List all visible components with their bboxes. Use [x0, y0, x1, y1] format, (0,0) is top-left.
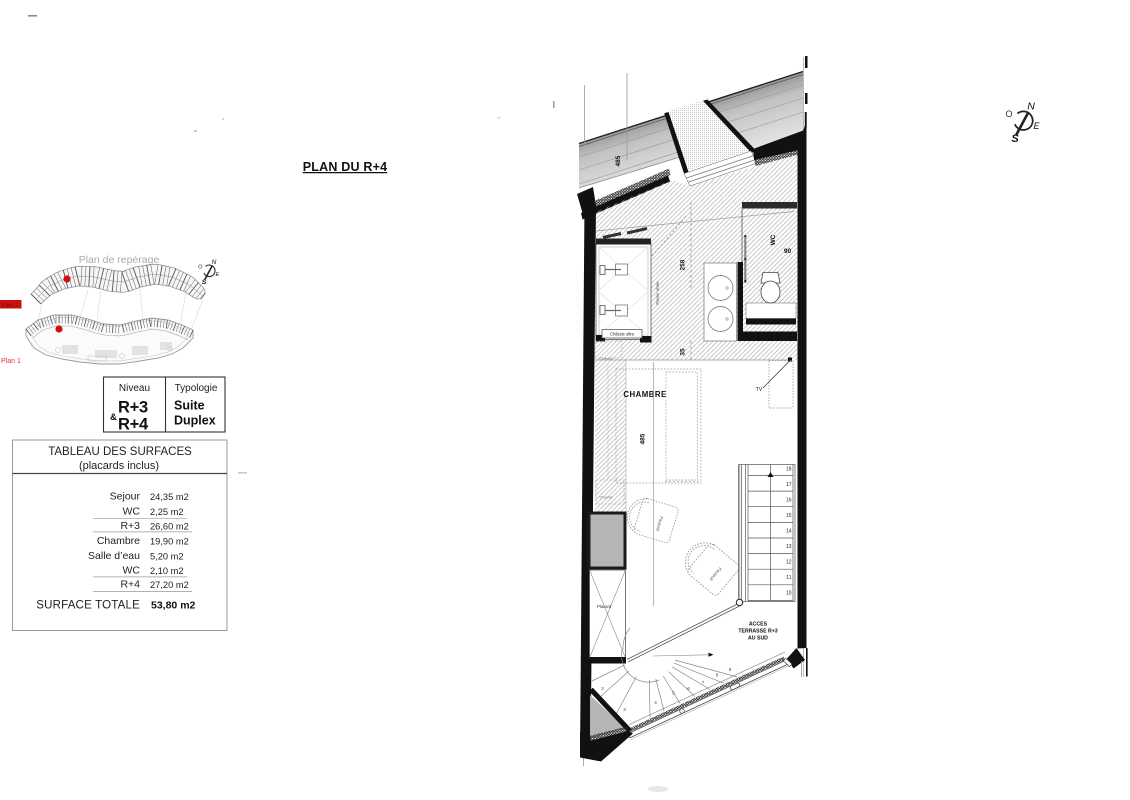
svg-text:(placards inclus): (placards inclus) [79, 460, 159, 472]
svg-text:485: 485 [615, 155, 622, 166]
svg-text:5,20 m2: 5,20 m2 [150, 552, 184, 562]
svg-text:O: O [198, 265, 203, 271]
svg-text:Typologie: Typologie [175, 383, 218, 394]
svg-text:CHAMBRE: CHAMBRE [623, 390, 666, 399]
svg-text:E: E [216, 272, 220, 278]
svg-text:S: S [1011, 133, 1019, 145]
svg-text:AU SUD: AU SUD [748, 636, 768, 642]
svg-text:TV: TV [756, 387, 763, 393]
svg-text:WC: WC [770, 234, 777, 245]
svg-text:Sejour: Sejour [110, 491, 141, 503]
svg-text:Fauteuil: Fauteuil [709, 567, 723, 582]
svg-text:ACCES: ACCES [749, 622, 768, 628]
svg-text:27,20 m2: 27,20 m2 [150, 580, 189, 590]
svg-text:R+3: R+3 [118, 399, 148, 417]
svg-text:11: 11 [786, 575, 791, 581]
svg-text:6: 6 [687, 686, 690, 691]
svg-text:485: 485 [640, 433, 647, 444]
svg-text:Châssis ultra: Châssis ultra [610, 332, 634, 337]
svg-text:Salle d’eau: Salle d’eau [88, 550, 140, 562]
svg-text:Duplex: Duplex [174, 414, 216, 428]
svg-text:Chevet: Chevet [600, 356, 614, 361]
svg-text:Plan de repérage: Plan de repérage [79, 254, 160, 266]
svg-text:14: 14 [786, 529, 792, 535]
svg-text:PLAN DU R+4: PLAN DU R+4 [303, 160, 388, 174]
svg-text:3: 3 [623, 707, 626, 712]
svg-text:12: 12 [786, 560, 792, 566]
svg-text:R+3: R+3 [120, 520, 140, 532]
svg-text:7: 7 [702, 680, 705, 685]
svg-text:SURFACE TOTALE: SURFACE TOTALE [36, 600, 140, 612]
svg-text:O: O [1005, 109, 1012, 119]
svg-text:TABLEAU DES SURFACES: TABLEAU DES SURFACES [48, 446, 192, 458]
svg-text:2,10 m2: 2,10 m2 [150, 566, 184, 576]
svg-text:E: E [1033, 121, 1040, 131]
svg-text:WC: WC [123, 506, 141, 518]
svg-text:Plan 1: Plan 1 [1, 358, 21, 365]
svg-text:53,80 m2: 53,80 m2 [151, 600, 196, 612]
svg-text:35: 35 [680, 348, 687, 356]
svg-text:10: 10 [786, 591, 792, 597]
svg-text:15: 15 [786, 513, 792, 519]
svg-text:4: 4 [654, 700, 657, 705]
svg-text:Chevet: Chevet [600, 495, 614, 500]
svg-text:Plan 2: Plan 2 [2, 303, 18, 309]
svg-text:N: N [1027, 101, 1035, 113]
svg-text:19,90 m2: 19,90 m2 [150, 537, 189, 547]
svg-text:TERRASSE R+3: TERRASSE R+3 [738, 629, 777, 635]
svg-text:&: & [110, 412, 117, 423]
svg-text:24,35 m2: 24,35 m2 [150, 492, 189, 502]
svg-text:5: 5 [672, 691, 675, 696]
svg-text:17: 17 [786, 482, 792, 488]
svg-text:258: 258 [680, 259, 687, 270]
svg-text:13: 13 [786, 544, 792, 550]
svg-text:Placard: Placard [597, 604, 612, 609]
svg-text:R+4: R+4 [118, 416, 149, 434]
svg-text:2,25 m2: 2,25 m2 [150, 507, 184, 517]
svg-text:Fauteuil: Fauteuil [655, 516, 664, 532]
svg-text:26,60 m2: 26,60 m2 [150, 521, 189, 531]
svg-text:Chambre: Chambre [97, 535, 140, 547]
svg-text:Suite: Suite [174, 399, 205, 413]
svg-text:90: 90 [784, 248, 792, 255]
svg-text:Niveau: Niveau [119, 383, 150, 394]
svg-text:2: 2 [601, 686, 604, 691]
svg-text:S: S [202, 279, 207, 286]
svg-text:WC: WC [123, 565, 141, 577]
svg-text:8: 8 [716, 673, 719, 678]
svg-text:18: 18 [786, 467, 792, 473]
svg-text:N: N [212, 259, 217, 266]
svg-text:Parois vitrée: Parois vitrée [655, 281, 660, 305]
svg-text:R+4: R+4 [120, 579, 140, 591]
svg-text:9: 9 [729, 667, 732, 672]
svg-text:16: 16 [786, 498, 792, 504]
